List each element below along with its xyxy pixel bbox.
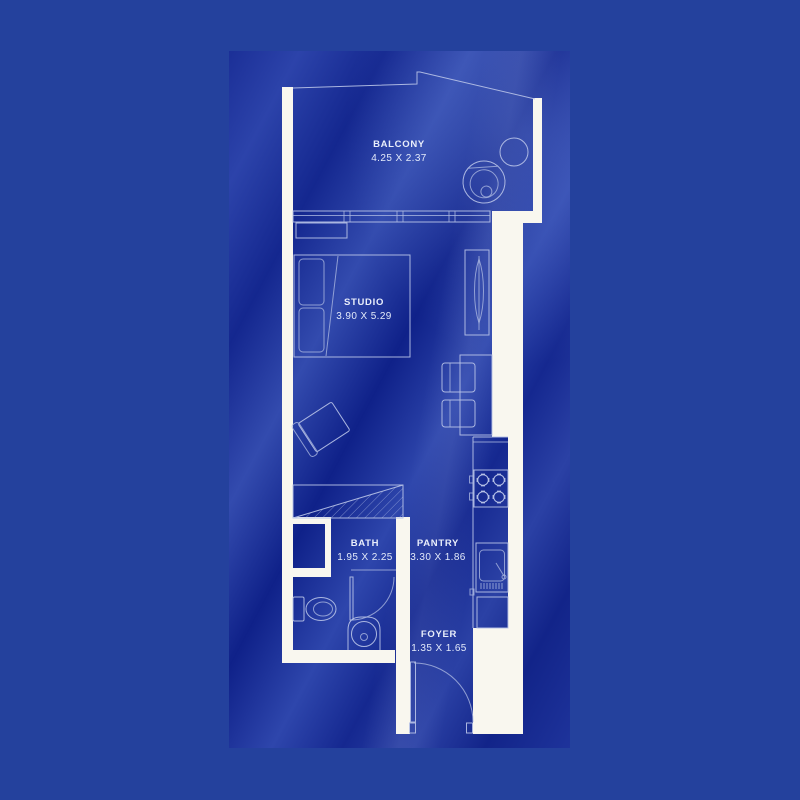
wall-balcony-right (533, 98, 542, 211)
wall-studio-right (492, 223, 523, 437)
room-label-bath: BATH (351, 538, 379, 549)
blanket-fold (326, 256, 338, 356)
balcony-table (500, 138, 528, 166)
room-label-pantry: PANTRY (417, 538, 459, 549)
room-dims-pantry: 3.30 X 1.86 (410, 552, 466, 563)
wall-kitchen-right (508, 437, 523, 628)
room-dims-bath: 1.95 X 2.25 (337, 552, 393, 563)
floorplan-page: BALCONY 4.25 X 2.37 STUDIO 3.90 X 5.29 B… (0, 0, 800, 800)
door-jamb (467, 723, 473, 733)
window-band (293, 211, 490, 222)
studio-area (291, 223, 492, 458)
wall-bath-pantry-divider (396, 517, 410, 734)
room-label-balcony: BALCONY (373, 139, 425, 150)
window-cabinet (296, 223, 347, 238)
armchair (291, 400, 351, 457)
wall-bath-bottom (282, 650, 395, 663)
bath-area (293, 570, 396, 650)
room-label-studio: STUDIO (344, 297, 384, 308)
pillow (299, 259, 324, 305)
balcony-chair (455, 153, 514, 212)
balcony-outline (293, 72, 535, 99)
dining-set (442, 355, 492, 435)
entrance-door (410, 662, 474, 733)
door-jamb (410, 723, 416, 733)
toilet (293, 597, 336, 621)
balcony-area (293, 138, 528, 222)
pillow (299, 308, 324, 352)
bath-sink (348, 617, 380, 650)
stove (474, 470, 508, 507)
room-dims-studio: 3.90 X 5.29 (336, 311, 392, 322)
wall-balcony-cap (492, 211, 542, 223)
kitchen-sink (476, 543, 508, 592)
floorplan-svg: BALCONY 4.25 X 2.37 STUDIO 3.90 X 5.29 B… (0, 0, 800, 800)
wall-foyer-right-block (473, 628, 523, 734)
room-dims-balcony: 4.25 X 2.37 (371, 153, 427, 164)
shower-hatch (290, 480, 408, 522)
dining-chair (442, 400, 475, 427)
bathroom-door (350, 577, 394, 620)
room-dims-foyer: 1.35 X 1.65 (411, 643, 467, 654)
tv-console (465, 250, 489, 335)
room-label-foyer: FOYER (421, 629, 457, 640)
dining-chair (442, 363, 475, 392)
walls (282, 87, 542, 734)
fridge (477, 597, 508, 628)
dining-table (460, 355, 492, 435)
kitchen-counter (470, 437, 509, 628)
